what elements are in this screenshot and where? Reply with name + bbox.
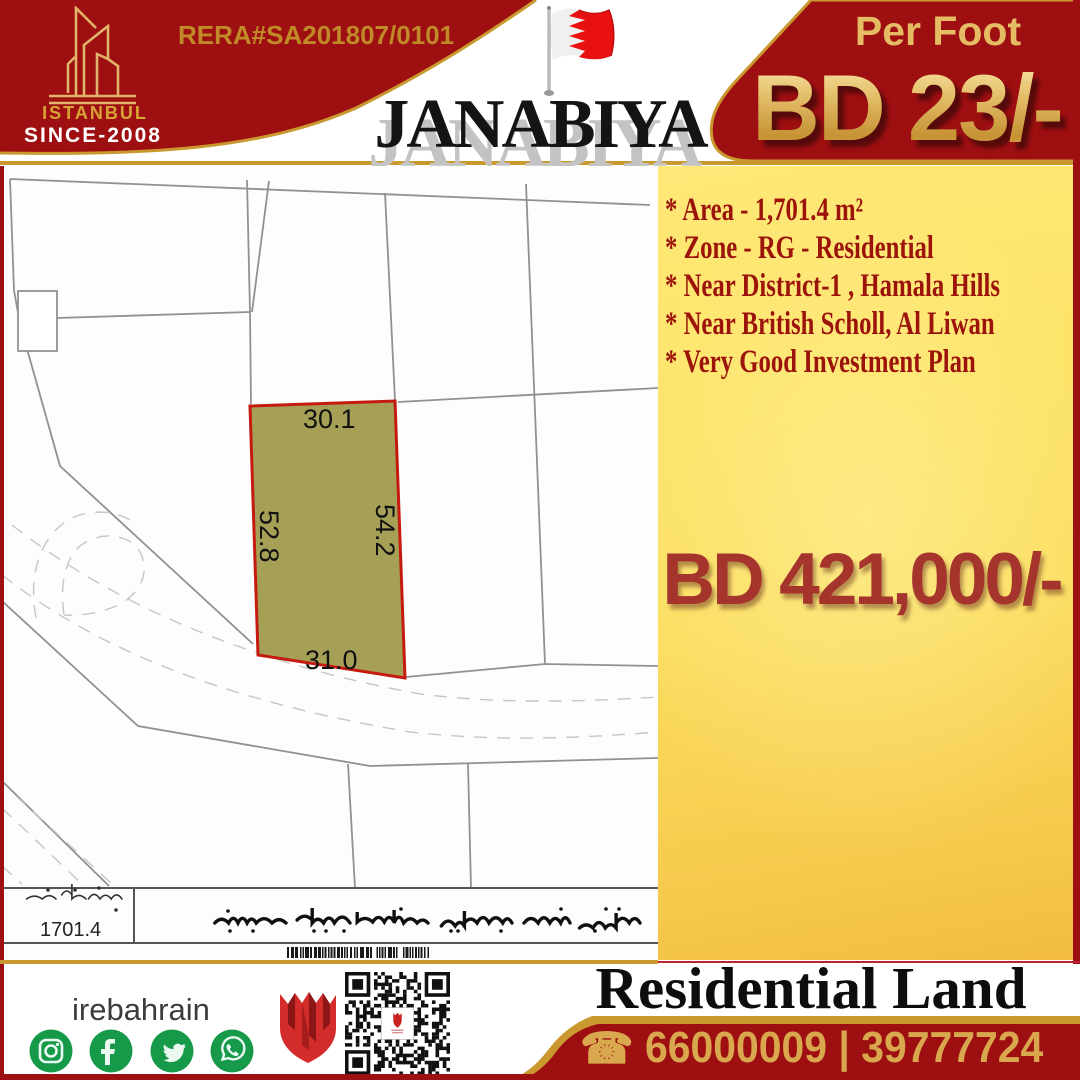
svg-text:52.8: 52.8 — [254, 510, 284, 563]
svg-text:54.2: 54.2 — [370, 504, 400, 557]
svg-text:30.1: 30.1 — [303, 404, 356, 434]
svg-text:31.0: 31.0 — [305, 645, 358, 675]
svg-text:1701.4: 1701.4 — [40, 919, 101, 941]
